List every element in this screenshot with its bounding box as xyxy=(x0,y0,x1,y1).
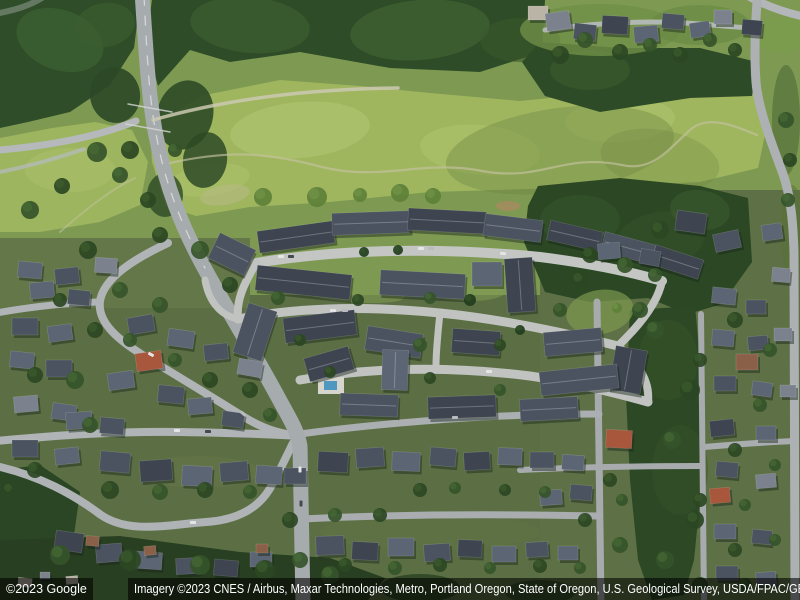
satellite-map-canvas[interactable] xyxy=(0,0,800,600)
map-viewport: ©2023 Google Imagery ©2023 CNES / Airbus… xyxy=(0,0,800,600)
terrain-layer xyxy=(0,0,800,600)
satellite-imagery xyxy=(0,0,800,600)
